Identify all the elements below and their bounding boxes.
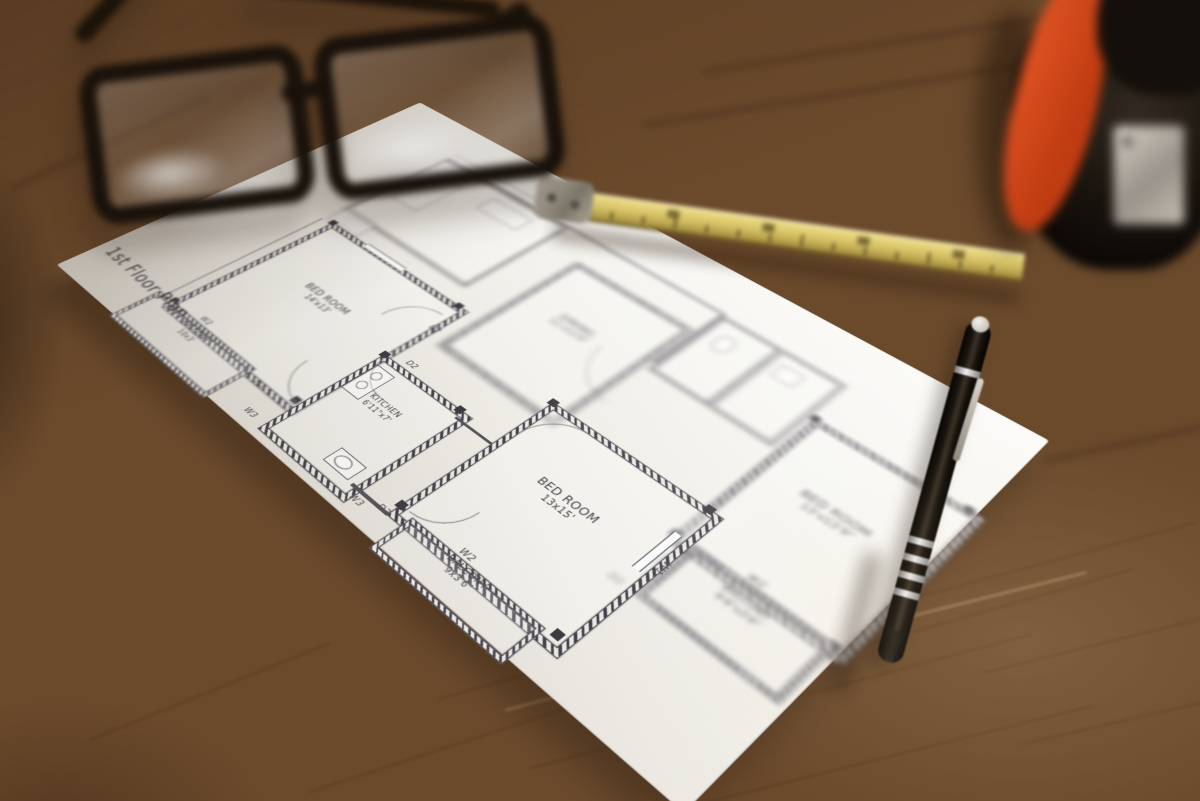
pen-tip bbox=[875, 627, 909, 667]
ruler-tick bbox=[927, 252, 931, 264]
belt-clip-screw bbox=[1123, 137, 1132, 146]
glasses-temple-left bbox=[72, 0, 159, 46]
wood-grain-streak bbox=[1022, 698, 1200, 746]
ruler-number bbox=[857, 236, 870, 246]
pen-ring bbox=[903, 552, 930, 566]
eyeglasses bbox=[0, 0, 620, 250]
ruler-tick bbox=[895, 252, 898, 260]
ruler-number bbox=[762, 223, 775, 233]
pen-ring bbox=[898, 570, 925, 584]
ruler-tick bbox=[705, 225, 708, 233]
ruler-tick bbox=[737, 229, 740, 237]
pen-ring bbox=[907, 535, 934, 549]
tape-measure-belt-clip bbox=[1113, 125, 1185, 225]
glasses-temple-right bbox=[245, 0, 500, 18]
lens-reflection bbox=[343, 114, 475, 181]
glasses-left-lens bbox=[76, 42, 318, 227]
ruler-tick bbox=[642, 216, 645, 224]
ruler-number bbox=[667, 210, 680, 220]
photo-floor-plan-on-desk: DINING 11'x12'6" BED ROOM 13'x13'9" BALC… bbox=[0, 0, 1200, 801]
glasses-right-lens bbox=[311, 11, 568, 203]
wood-grain-streak bbox=[983, 609, 1200, 675]
ruler-tick bbox=[959, 261, 962, 269]
pen-ring bbox=[893, 587, 920, 601]
ruler-tick bbox=[800, 234, 804, 246]
wood-grain-streak bbox=[1041, 421, 1200, 463]
ruler-tick bbox=[769, 234, 772, 242]
wood-grain-streak bbox=[89, 641, 331, 741]
ruler-tick bbox=[832, 243, 835, 251]
ruler-number bbox=[952, 250, 965, 260]
lens-reflection bbox=[108, 142, 231, 206]
tape-measure bbox=[985, 0, 1200, 300]
ruler-tick bbox=[864, 247, 867, 255]
pen-top-button bbox=[970, 314, 992, 334]
pen-ring bbox=[954, 365, 981, 379]
